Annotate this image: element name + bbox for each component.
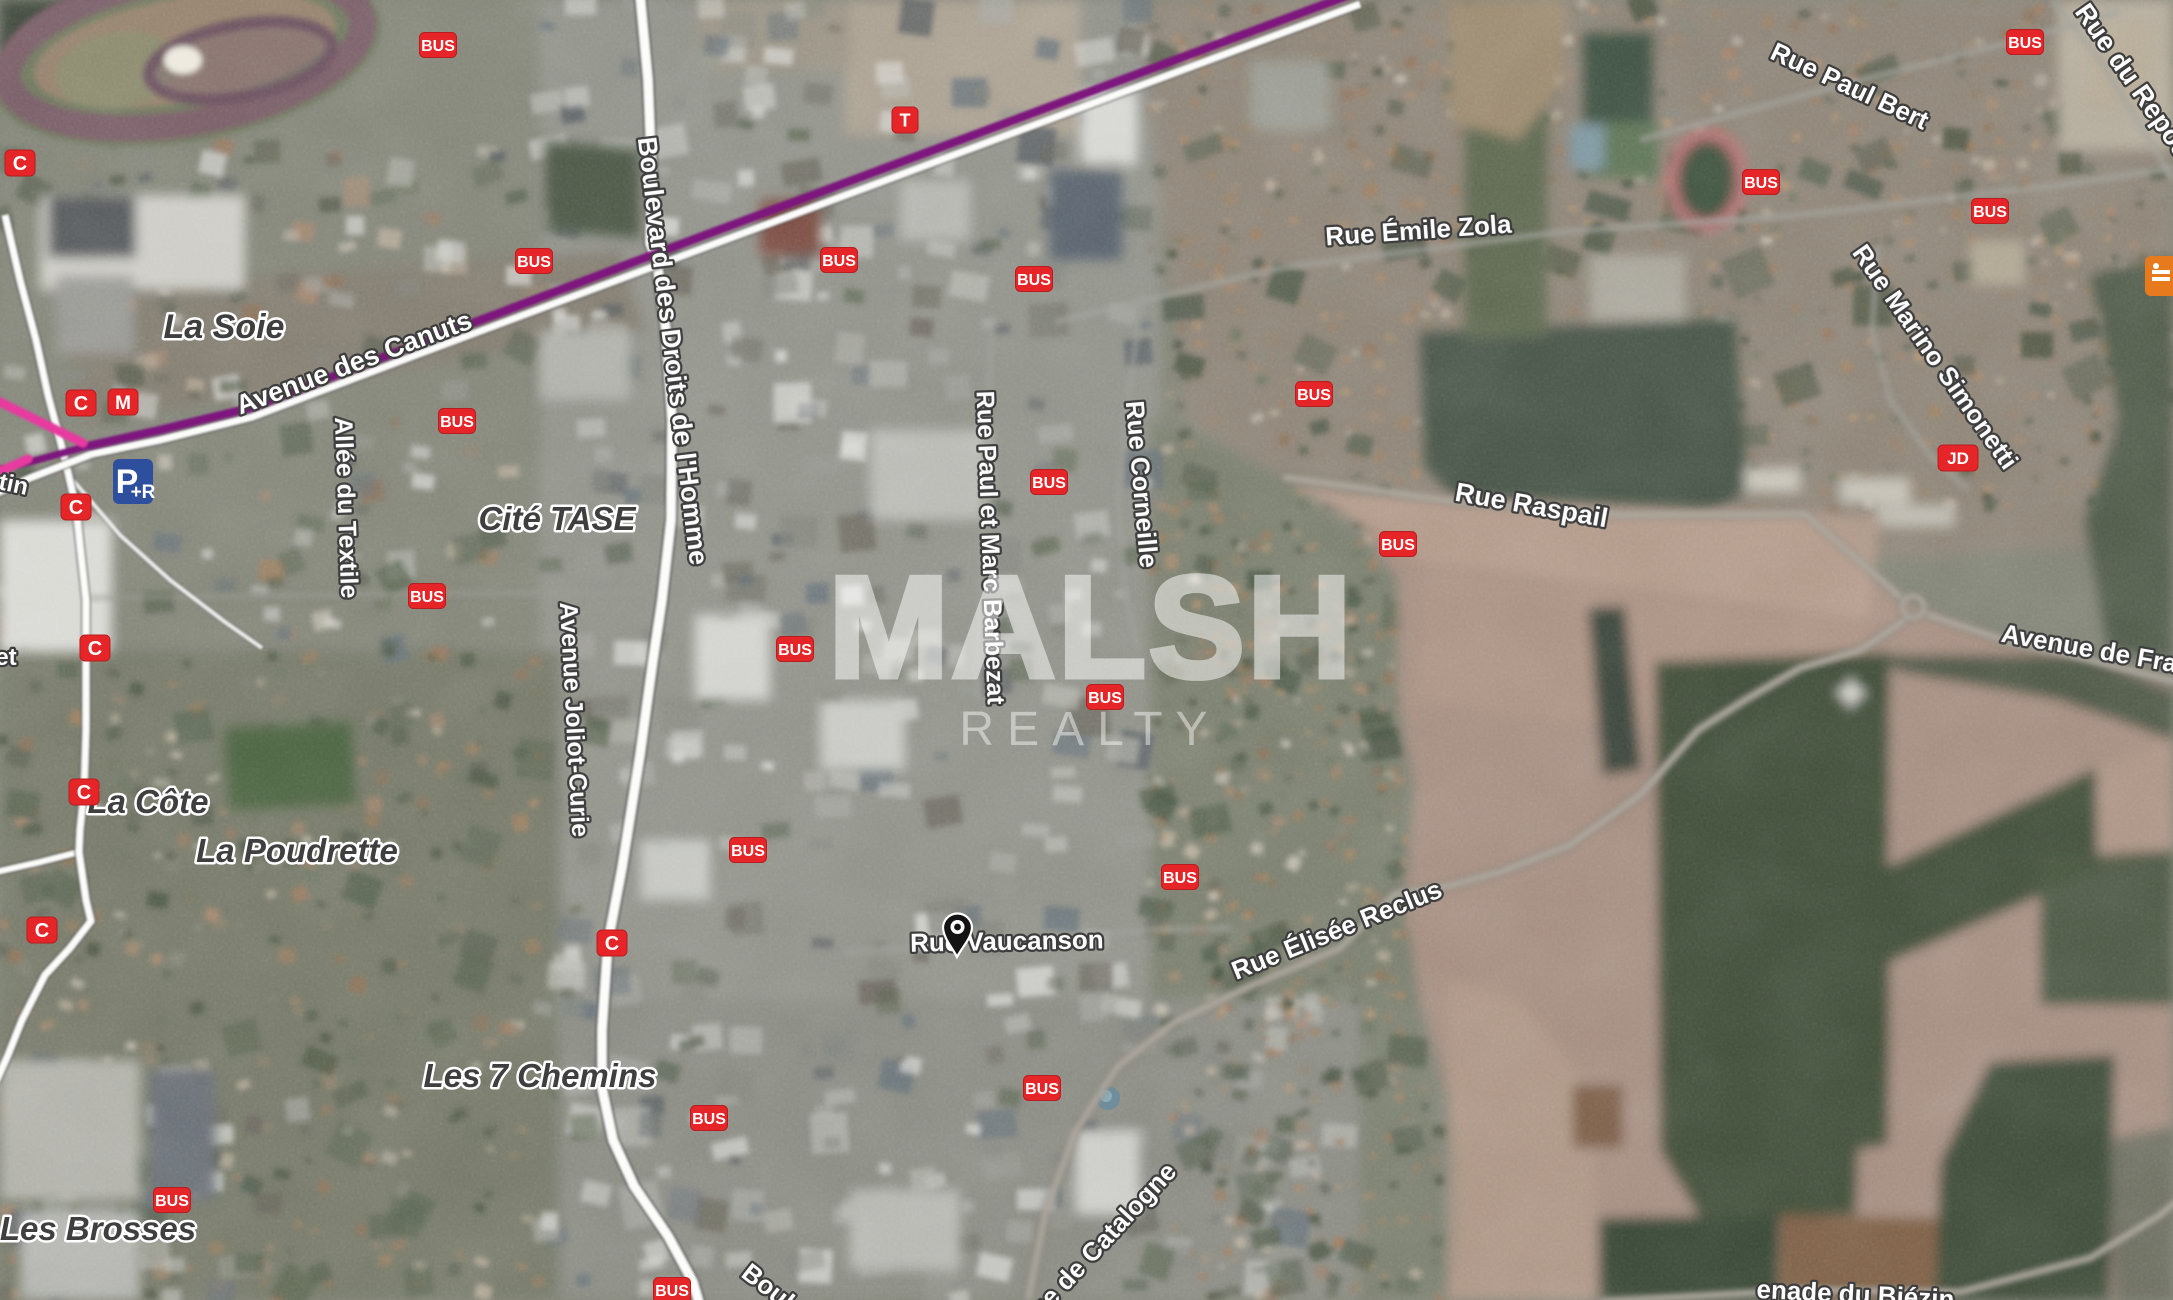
svg-text:BUS: BUS: [822, 253, 856, 270]
svg-text:BUS: BUS: [778, 642, 812, 659]
svg-text:C: C: [77, 782, 91, 804]
svg-text:BUS: BUS: [1017, 272, 1051, 289]
svg-text:MALSH: MALSH: [828, 546, 1354, 708]
svg-text:+R: +R: [131, 482, 156, 503]
svg-text:C: C: [69, 497, 83, 519]
svg-text:C: C: [35, 920, 49, 942]
svg-text:C: C: [13, 153, 27, 175]
svg-text:Cité TASE: Cité TASE: [478, 500, 636, 537]
svg-text:BUS: BUS: [410, 589, 444, 606]
svg-text:BUS: BUS: [155, 1193, 189, 1210]
svg-text:C: C: [88, 638, 102, 660]
svg-text:Les 7 Chemins: Les 7 Chemins: [424, 1057, 657, 1094]
svg-text:BUS: BUS: [1744, 175, 1778, 192]
svg-text:C: C: [74, 393, 88, 415]
svg-text:C: C: [605, 933, 619, 955]
svg-text:REALTY: REALTY: [959, 703, 1220, 756]
svg-text:BUS: BUS: [421, 38, 455, 55]
svg-text:BUS: BUS: [1381, 537, 1415, 554]
svg-text:Rue Vaucanson: Rue Vaucanson: [910, 924, 1104, 957]
svg-text:BUS: BUS: [440, 414, 474, 431]
svg-text:BUS: BUS: [1025, 1081, 1059, 1098]
svg-text:La Côte: La Côte: [87, 783, 208, 820]
svg-text:BUS: BUS: [1032, 475, 1066, 492]
svg-text:BUS: BUS: [1297, 387, 1331, 404]
svg-text:La Poudrette: La Poudrette: [196, 832, 398, 869]
svg-text:BUS: BUS: [2008, 35, 2042, 52]
svg-text:T: T: [900, 110, 911, 130]
svg-text:BUS: BUS: [517, 254, 551, 271]
svg-text:BUS: BUS: [731, 843, 765, 860]
svg-text:M: M: [115, 393, 131, 414]
svg-text:BUS: BUS: [1973, 204, 2007, 221]
svg-text:JD: JD: [1947, 449, 1969, 468]
svg-text:BUS: BUS: [655, 1283, 689, 1300]
svg-text:tin: tin: [0, 468, 31, 501]
svg-text:et: et: [0, 644, 17, 671]
svg-text:Les Brosses: Les Brosses: [0, 1210, 196, 1247]
svg-text:BUS: BUS: [692, 1111, 726, 1128]
svg-text:La Soie: La Soie: [164, 308, 285, 346]
svg-text:BUS: BUS: [1163, 870, 1197, 887]
